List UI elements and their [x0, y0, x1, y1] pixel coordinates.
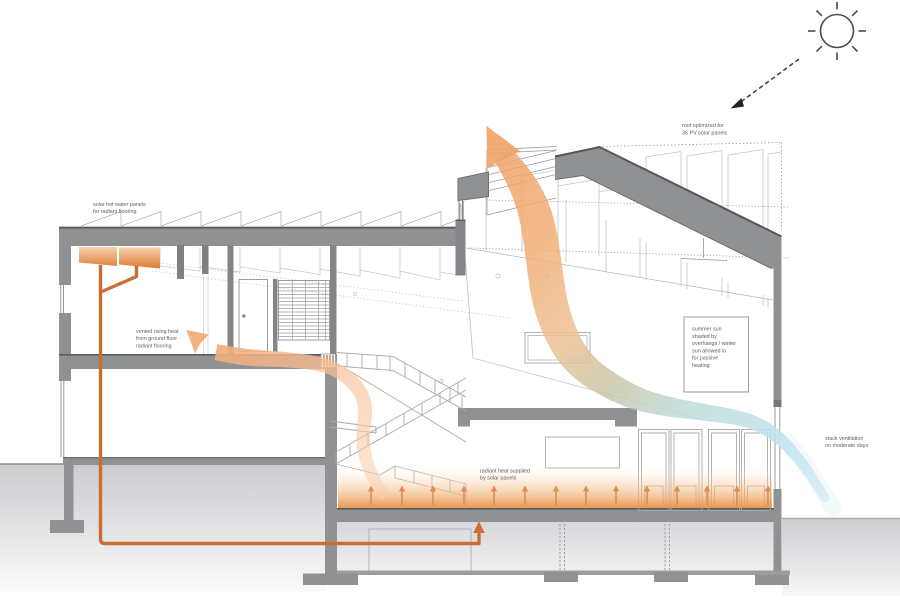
svg-text:vented rising heat: vented rising heat	[136, 329, 179, 335]
svg-text:radiant heat supplied: radiant heat supplied	[480, 469, 530, 475]
svg-text:sun allowed in: sun allowed in	[692, 348, 726, 354]
svg-text:on moderate days: on moderate days	[825, 443, 868, 449]
svg-text:overhangs / winter: overhangs / winter	[692, 341, 736, 347]
svg-text:from ground floor: from ground floor	[136, 336, 177, 342]
svg-text:by solar panels: by solar panels	[480, 476, 517, 482]
svg-text:summer sun: summer sun	[692, 327, 722, 333]
svg-text:radiant flooring: radiant flooring	[136, 343, 172, 349]
svg-text:solar hot water panels: solar hot water panels	[93, 202, 146, 208]
svg-text:shaded by: shaded by	[692, 334, 717, 340]
svg-text:36 PV solar panels: 36 PV solar panels	[682, 131, 728, 137]
svg-text:stack ventilation: stack ventilation	[825, 436, 863, 442]
svg-text:for passive: for passive	[692, 356, 718, 362]
svg-text:heating: heating	[692, 363, 710, 369]
svg-text:roof optimized for: roof optimized for	[682, 123, 724, 129]
svg-text:for radiant flooring: for radiant flooring	[93, 209, 136, 215]
